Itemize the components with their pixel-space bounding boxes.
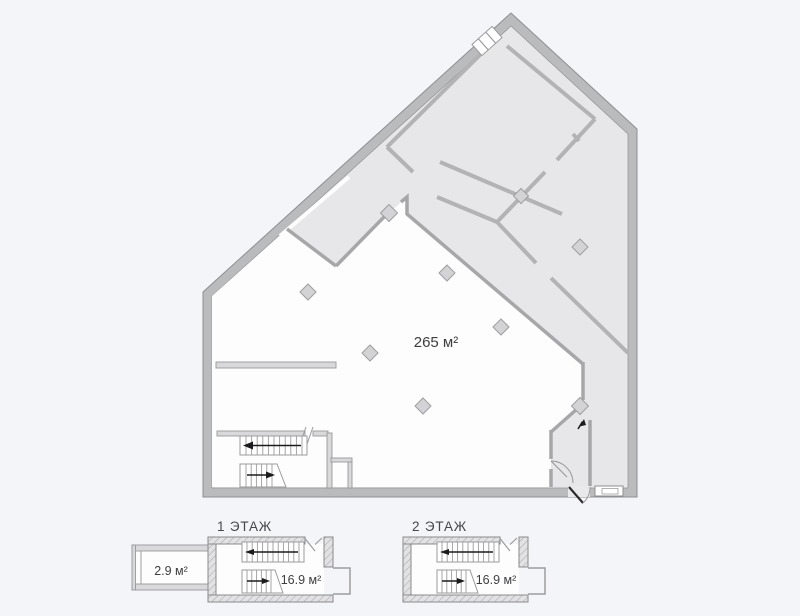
floor-1-area-label: 16.9 м² — [281, 573, 322, 587]
stair-wall — [313, 431, 328, 436]
mini-wall — [519, 537, 528, 567]
stair-wall — [217, 431, 305, 436]
annex-wall — [132, 545, 208, 551]
mini-wall — [324, 537, 333, 567]
stair-wall — [331, 458, 352, 462]
mini-wall — [208, 595, 333, 602]
window — [595, 486, 623, 496]
stair-wall — [348, 462, 352, 488]
mid-partition-wall — [216, 362, 336, 368]
entrance-door-gap — [568, 486, 590, 497]
annex-area-label: 2.9 м² — [154, 564, 188, 578]
mini-wall — [208, 537, 216, 602]
mini-wall — [403, 537, 411, 602]
annex-wall — [132, 584, 208, 590]
floor-2-area-label: 16.9 м² — [476, 573, 517, 587]
mini-wall — [403, 595, 528, 602]
floor-2-title: 2 ЭТАЖ — [412, 519, 467, 534]
annex-wall — [132, 545, 136, 590]
annex: 2.9 м² — [132, 545, 208, 590]
floor-1-title: 1 ЭТАЖ — [217, 519, 272, 534]
area-label-main: 265 м² — [414, 334, 459, 351]
floor-plan-canvas: 265 м² 1 ЭТАЖ 2.9 м² 16.9 м² — [0, 0, 800, 616]
